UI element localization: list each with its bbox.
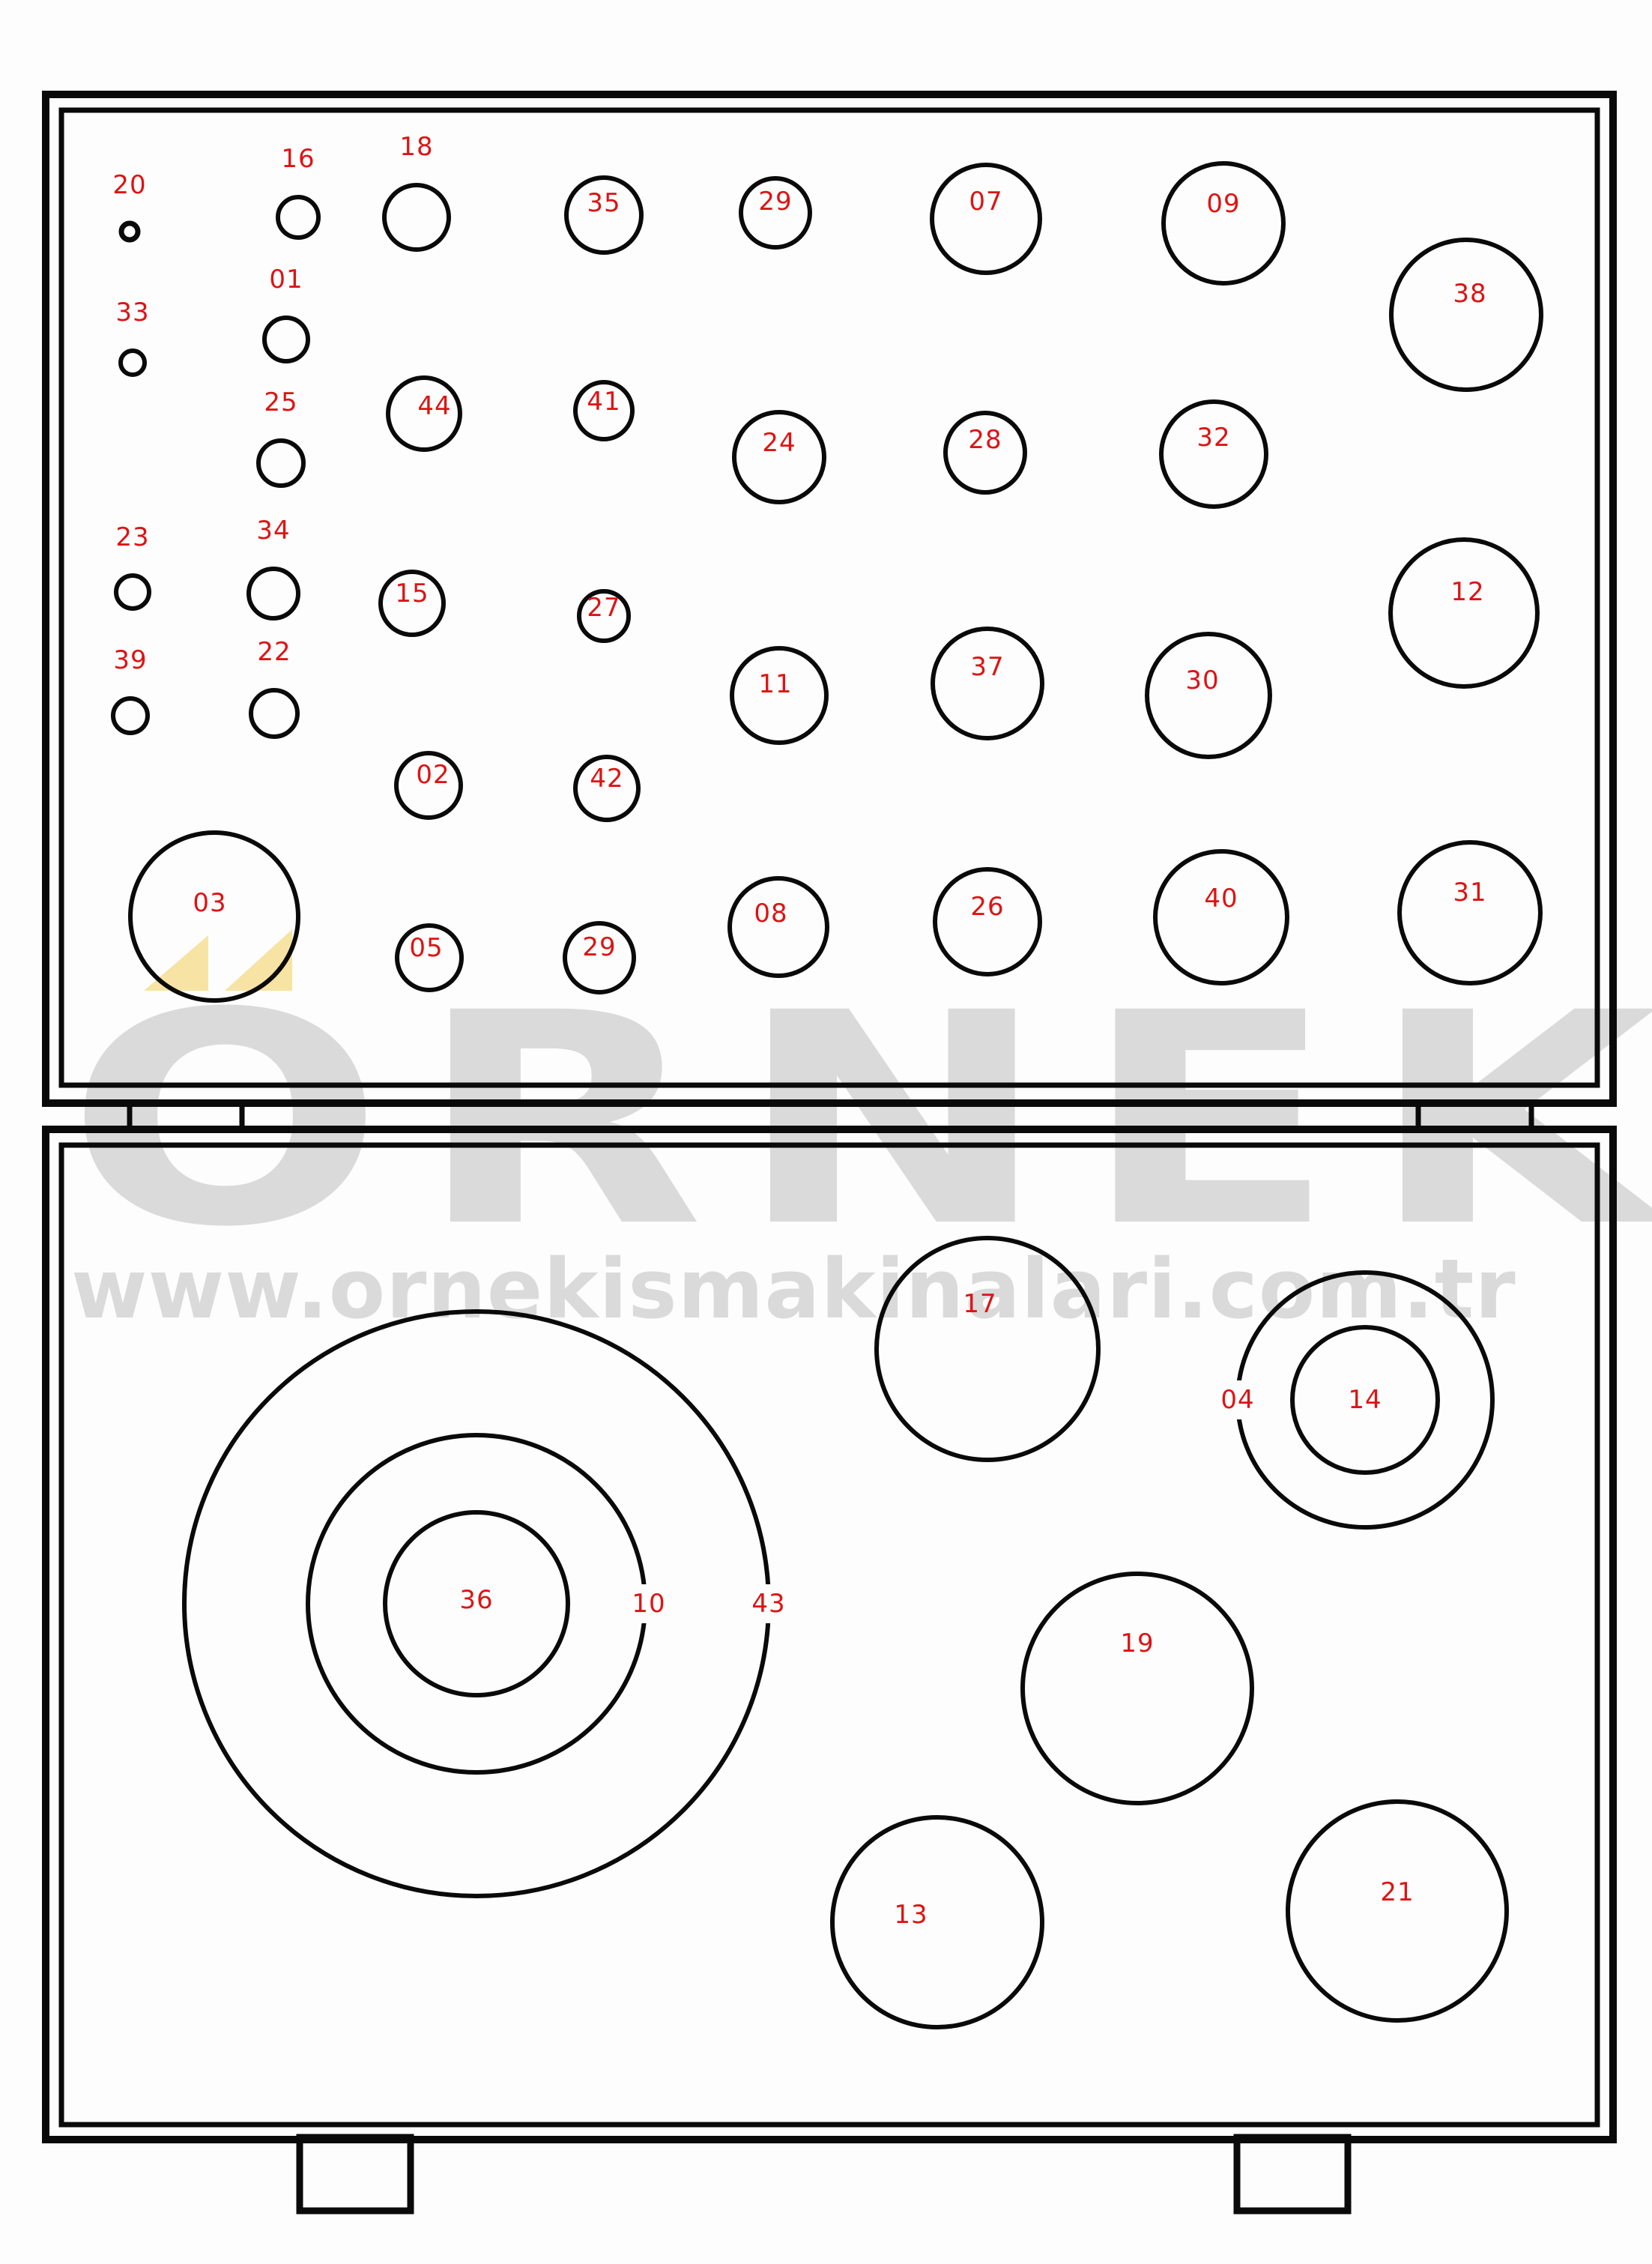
hole-label-28: 28 bbox=[968, 425, 1002, 455]
hole-label-44: 44 bbox=[417, 391, 451, 421]
hole-19: 19 bbox=[1023, 1574, 1252, 1803]
hole-label-35: 35 bbox=[587, 188, 620, 218]
hole-circle-20 bbox=[121, 223, 138, 240]
hole-label-19: 19 bbox=[1120, 1628, 1154, 1658]
hole-circle-22 bbox=[251, 690, 297, 737]
hole-11: 11 bbox=[732, 648, 826, 743]
hole-42: 42 bbox=[575, 757, 638, 820]
diagram-canvas: ORNEK www.ornekismakinalari.com.tr 20161… bbox=[0, 0, 1652, 2264]
hole-33: 33 bbox=[115, 298, 149, 375]
hole-25: 25 bbox=[258, 387, 303, 486]
hole-29: 29 bbox=[741, 178, 810, 247]
hole-15: 15 bbox=[381, 572, 444, 635]
hole-circle-09 bbox=[1164, 163, 1283, 283]
hole-circle-21 bbox=[1288, 1802, 1507, 2020]
left-foot bbox=[300, 2137, 411, 2211]
hole-circle-19 bbox=[1023, 1574, 1252, 1803]
hole-label-04: 04 bbox=[1220, 1385, 1254, 1415]
hole-35: 35 bbox=[566, 178, 641, 253]
hole-label-33: 33 bbox=[115, 298, 149, 327]
hole-circle-18 bbox=[384, 185, 449, 250]
hole-label-41: 41 bbox=[587, 387, 620, 417]
hole-label-32: 32 bbox=[1196, 423, 1230, 453]
hole-circle-25 bbox=[258, 441, 303, 486]
hole-label-18: 18 bbox=[399, 132, 433, 162]
hole-label-24: 24 bbox=[762, 428, 796, 458]
hole-24: 24 bbox=[734, 412, 824, 502]
hole-18: 18 bbox=[384, 132, 449, 250]
hole-label-25: 25 bbox=[264, 387, 297, 417]
hole-label-43: 43 bbox=[751, 1589, 785, 1619]
hole-label-36: 36 bbox=[459, 1585, 493, 1615]
hole-label-21: 21 bbox=[1380, 1877, 1414, 1907]
hole-label-05: 05 bbox=[409, 933, 443, 963]
hole-label-01: 01 bbox=[269, 265, 303, 295]
hole-label-08: 08 bbox=[754, 899, 787, 929]
hole-20: 20 bbox=[112, 170, 146, 240]
hole-circle-13 bbox=[832, 1817, 1042, 2027]
hole-label-15: 15 bbox=[395, 579, 429, 609]
hole-label-20: 20 bbox=[112, 170, 146, 200]
hole-23: 23 bbox=[115, 522, 149, 609]
hole-label-14: 14 bbox=[1348, 1385, 1382, 1415]
hole-12: 12 bbox=[1391, 540, 1537, 686]
hole-circle-34 bbox=[249, 569, 298, 618]
hole-36: 36 bbox=[385, 1512, 568, 1695]
hole-13: 13 bbox=[832, 1817, 1042, 2027]
hole-21: 21 bbox=[1288, 1802, 1507, 2020]
hole-label-38: 38 bbox=[1453, 279, 1486, 309]
hole-label-07: 07 bbox=[969, 187, 1002, 217]
hole-label-29: 29 bbox=[582, 932, 616, 962]
hole-44: 44 bbox=[388, 378, 460, 450]
hole-label-34: 34 bbox=[256, 516, 290, 546]
hole-circle-38 bbox=[1391, 240, 1541, 390]
hole-34: 34 bbox=[249, 516, 298, 618]
watermark-brand-text: ORNEK bbox=[66, 950, 1652, 1291]
hole-30: 30 bbox=[1147, 634, 1270, 757]
hole-circle-16 bbox=[278, 197, 318, 238]
hole-27: 27 bbox=[579, 591, 629, 641]
hole-label-40: 40 bbox=[1204, 884, 1238, 914]
hole-label-16: 16 bbox=[281, 144, 315, 174]
hole-circle-33 bbox=[121, 351, 145, 375]
hole-label-13: 13 bbox=[894, 1900, 928, 1930]
hole-16: 16 bbox=[278, 144, 318, 238]
hole-circle-37 bbox=[933, 629, 1042, 738]
hole-label-02: 02 bbox=[416, 760, 450, 790]
right-foot bbox=[1237, 2137, 1348, 2211]
hole-circle-30 bbox=[1147, 634, 1270, 757]
hole-38: 38 bbox=[1391, 240, 1541, 390]
hole-circle-07 bbox=[932, 165, 1040, 273]
hole-label-03: 03 bbox=[193, 888, 226, 918]
hole-01: 01 bbox=[264, 265, 308, 361]
hole-02: 02 bbox=[396, 753, 461, 818]
drill-case-template-diagram: ORNEK www.ornekismakinalari.com.tr 20161… bbox=[0, 0, 1652, 2264]
hole-09: 09 bbox=[1164, 163, 1283, 283]
hole-circle-12 bbox=[1391, 540, 1537, 686]
hole-circle-39 bbox=[113, 698, 148, 733]
hole-circle-32 bbox=[1161, 402, 1266, 507]
hole-label-31: 31 bbox=[1453, 878, 1486, 908]
hole-label-30: 30 bbox=[1185, 665, 1219, 695]
hole-28: 28 bbox=[945, 413, 1025, 492]
hole-32: 32 bbox=[1161, 402, 1266, 507]
hole-14: 14 bbox=[1292, 1327, 1438, 1473]
hole-label-26: 26 bbox=[970, 892, 1004, 922]
hole-22: 22 bbox=[251, 637, 297, 737]
hole-label-23: 23 bbox=[115, 522, 149, 552]
hole-circle-23 bbox=[116, 576, 149, 609]
hole-label-12: 12 bbox=[1450, 577, 1484, 607]
hole-39: 39 bbox=[113, 645, 148, 733]
hole-label-17: 17 bbox=[963, 1289, 996, 1319]
hole-label-11: 11 bbox=[758, 669, 792, 699]
hole-label-39: 39 bbox=[113, 645, 147, 675]
hole-label-22: 22 bbox=[257, 637, 291, 667]
hole-label-29: 29 bbox=[758, 187, 792, 217]
hole-07: 07 bbox=[932, 165, 1040, 273]
hole-label-37: 37 bbox=[970, 652, 1004, 682]
hole-circle-01 bbox=[264, 318, 308, 361]
hole-37: 37 bbox=[933, 629, 1042, 738]
hole-41: 41 bbox=[575, 382, 632, 439]
hole-label-10: 10 bbox=[632, 1589, 665, 1619]
hole-label-27: 27 bbox=[587, 593, 620, 623]
hole-label-42: 42 bbox=[590, 764, 623, 794]
hole-label-09: 09 bbox=[1206, 189, 1240, 219]
